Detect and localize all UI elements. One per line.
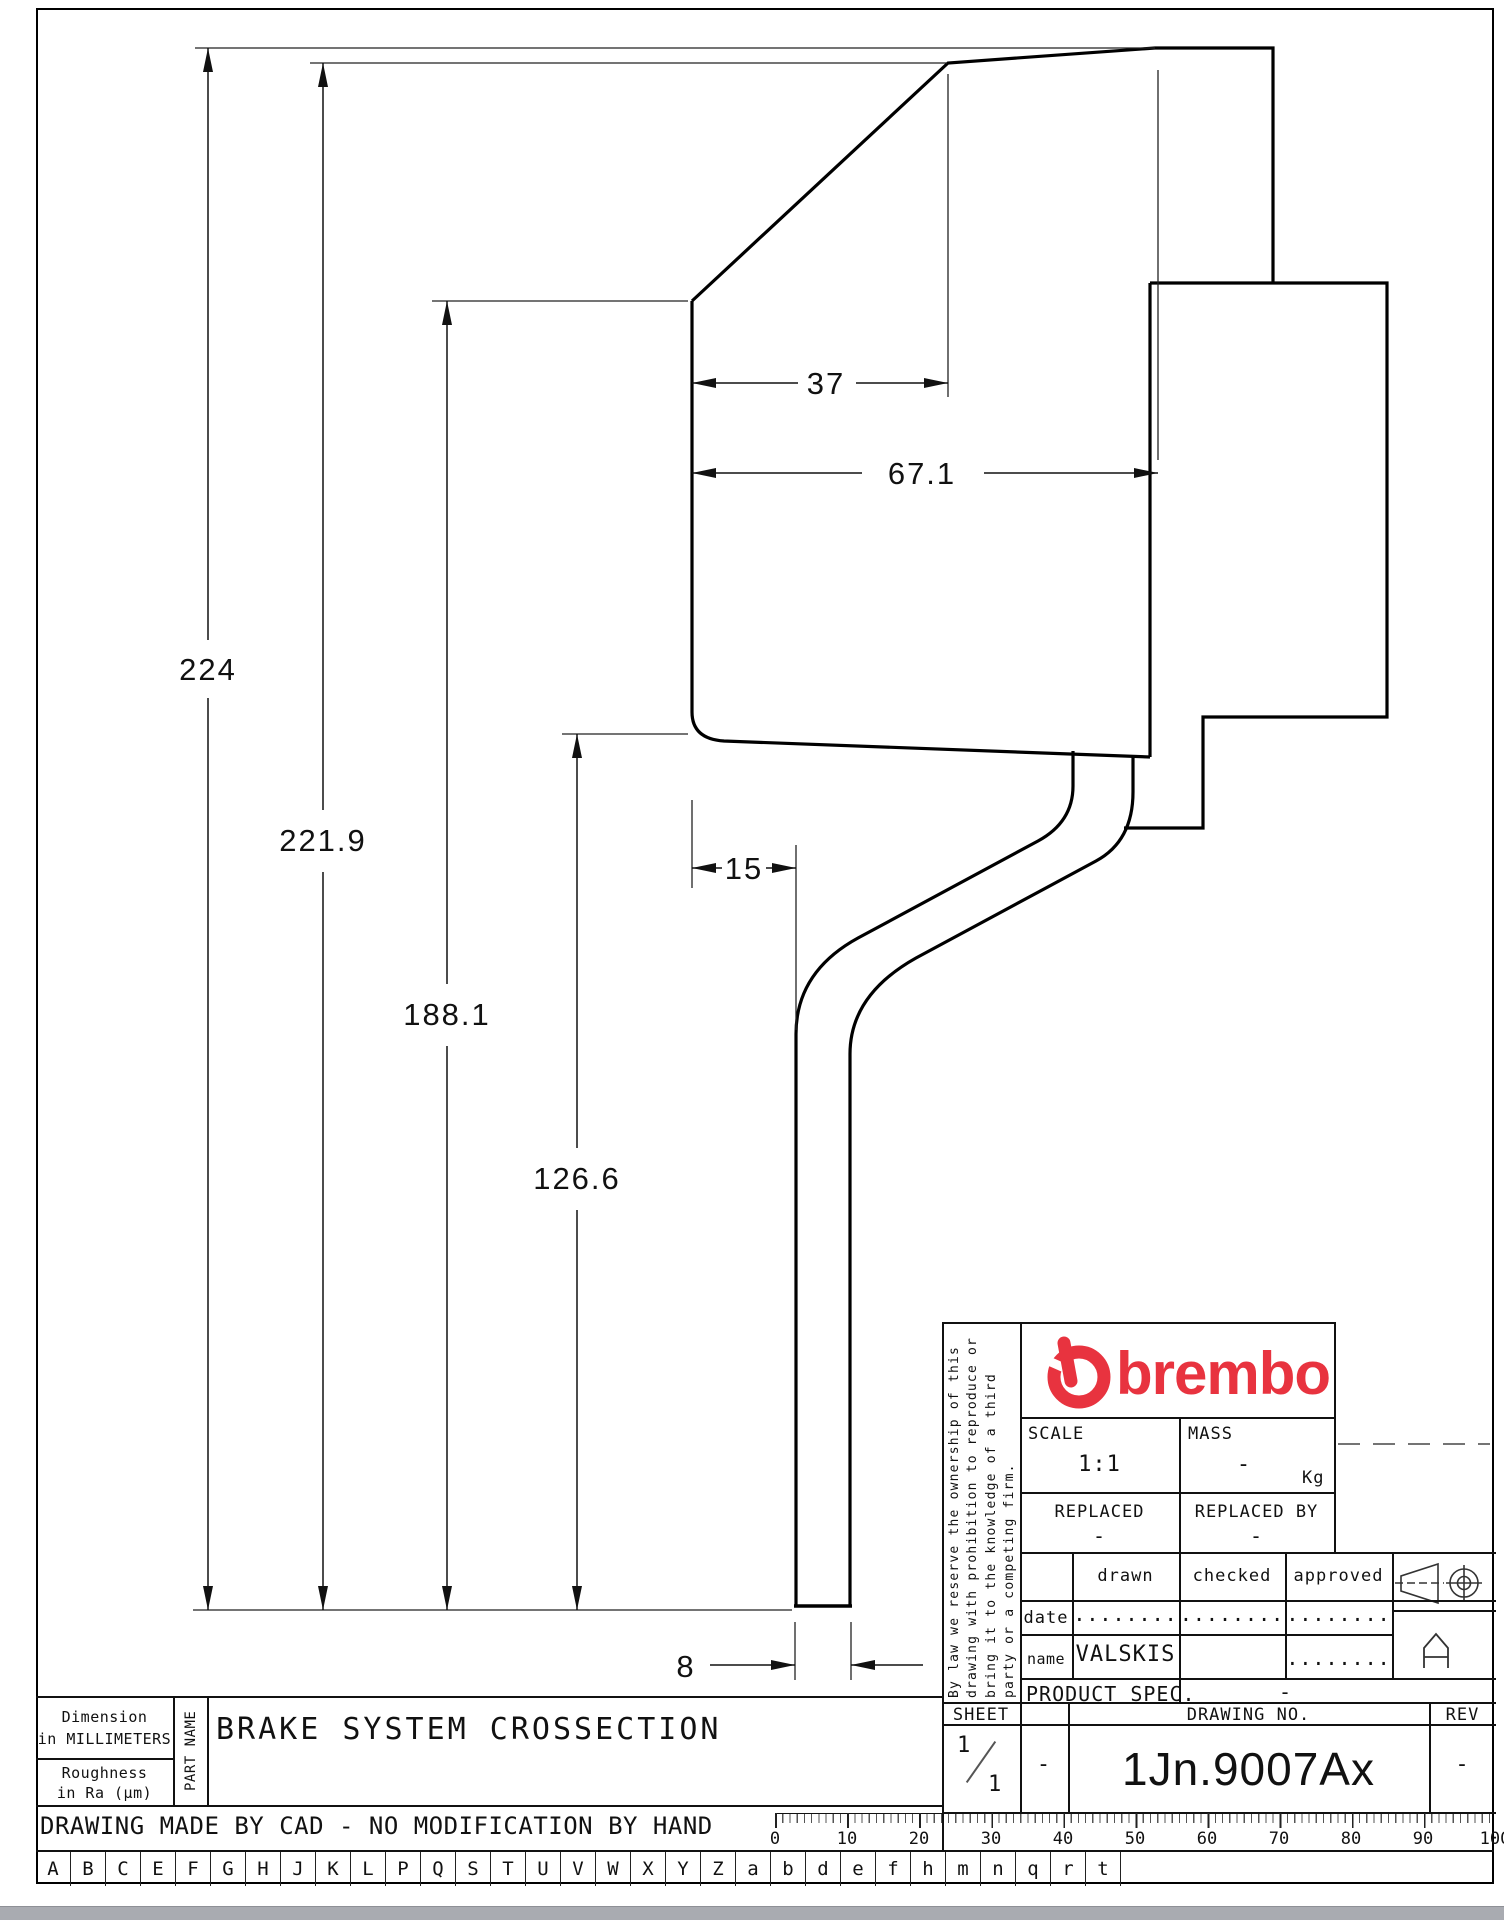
dim-37: 37 (807, 366, 845, 401)
revision-letter-cell: W (596, 1852, 631, 1886)
revision-letter-cell: t (1086, 1852, 1121, 1886)
dim-126-6: 126.6 (533, 1161, 621, 1196)
dim-188-1: 188.1 (403, 997, 491, 1032)
dim-224: 224 (179, 652, 237, 687)
revision-letter-cell: r (1051, 1852, 1086, 1886)
legal-line: drawing with prohibition to reproduce or (964, 1328, 981, 1698)
approved-header: approved (1285, 1566, 1392, 1586)
ruler-number: 10 (811, 1829, 883, 1849)
revision-letter-cell: S (456, 1852, 491, 1886)
revision-letter-cell: G (211, 1852, 246, 1886)
first-angle-projection-icon (1395, 1564, 1482, 1603)
partname-col-right (207, 1696, 209, 1805)
revision-letter-cell: C (106, 1852, 141, 1886)
body-top-profile (692, 48, 1273, 301)
mass-label: MASS (1188, 1424, 1233, 1444)
date-row-bottom (1020, 1634, 1392, 1636)
replaced-row-bottom (1020, 1552, 1496, 1554)
dim-8: 8 (676, 1649, 695, 1684)
footer-top-border (36, 1696, 942, 1698)
revision-letter-cell: e (841, 1852, 876, 1886)
revision-letter-cell: a (736, 1852, 771, 1886)
right-block-outline (1124, 283, 1387, 828)
scale-label: SCALE (1028, 1424, 1084, 1444)
roughness-note-line1: Roughness (36, 1764, 173, 1782)
legal-line: By law we reserve the ownership of this (946, 1328, 963, 1698)
date-approved: ........ (1285, 1602, 1392, 1626)
name-drawn: VALSKIS (1072, 1642, 1179, 1667)
revision-letter-cell: U (526, 1852, 561, 1886)
drawing-no-value: 1Jn.9007Ax (1068, 1742, 1429, 1796)
revision-letter-cell: V (561, 1852, 596, 1886)
footer-bottom-border (36, 1805, 942, 1807)
name-approved: ........ (1285, 1646, 1392, 1670)
product-spec-label: PRODUCT SPEC. (1026, 1682, 1196, 1706)
part-name-label: PART NAME (175, 1698, 207, 1803)
cad-note: DRAWING MADE BY CAD - NO MODIFICATION BY… (40, 1812, 713, 1840)
revision-letter-cell: Q (421, 1852, 456, 1886)
brembo-logo: brembo (1040, 1334, 1330, 1412)
dim-67-1: 67.1 (888, 456, 956, 491)
revision-letter-cell: h (911, 1852, 946, 1886)
replaced-value: - (1020, 1524, 1179, 1548)
revision-letter-cell: T (491, 1852, 526, 1886)
revision-letter-cell: E (141, 1852, 176, 1886)
legal-line: party or a competing firm. (1001, 1328, 1018, 1698)
extension-lines (193, 48, 1490, 1680)
ruler-number: 50 (1099, 1829, 1171, 1849)
revision-letter-cell: J (281, 1852, 316, 1886)
scale-row-bottom (1020, 1492, 1334, 1494)
ruler-number: 20 (883, 1829, 955, 1849)
drawing-no-label: DRAWING NO. (1068, 1705, 1429, 1725)
dimension-note-line2: in MILLIMETERS (36, 1730, 173, 1748)
pipe-left-edge (796, 751, 1073, 1606)
ruler-scale: 0102030405060708090100 (739, 1829, 1504, 1849)
replaced-label: REPLACED (1020, 1502, 1179, 1522)
date-checked: ........ (1179, 1602, 1285, 1626)
ruler-number: 60 (1171, 1829, 1243, 1849)
approved-col-divider (1392, 1552, 1394, 1678)
ruler-number: 30 (955, 1829, 1027, 1849)
revision-letter-cell: K (316, 1852, 351, 1886)
revision-letter-cell: L (351, 1852, 386, 1886)
product-spec-value: - (1179, 1680, 1392, 1704)
sheet-col2-value: - (1020, 1752, 1068, 1777)
revision-letter-cell: m (946, 1852, 981, 1886)
checked-header: checked (1179, 1566, 1285, 1586)
revision-letter-cell: X (631, 1852, 666, 1886)
window-bottom-bar (0, 1906, 1504, 1920)
revision-letter-cell: B (71, 1852, 106, 1886)
revision-letter-cell: Z (701, 1852, 736, 1886)
legal-notice: By law we reserve the ownership of this … (946, 1328, 1018, 1698)
legal-col-right (1020, 1322, 1022, 1812)
sheet-denominator: 1 (988, 1772, 1002, 1797)
scale-value: 1:1 (1020, 1452, 1179, 1477)
ruler-major-ticks (775, 1813, 1496, 1828)
rev-label: REV (1429, 1705, 1496, 1725)
body-left-bottom (692, 301, 1150, 757)
revision-letter-cell: b (771, 1852, 806, 1886)
revision-letter-cell: A (36, 1852, 71, 1886)
revision-letter-cell: H (246, 1852, 281, 1886)
ruler-number: 40 (1027, 1829, 1099, 1849)
roughness-note-line2: in Ra (µm) (36, 1784, 173, 1802)
cad-drawing: 224 221.9 188.1 126.6 37 67.1 15 8 (0, 0, 1504, 1920)
part-title: BRAKE SYSTEM CROSSECTION (216, 1712, 721, 1747)
revision-letter-cell: d (806, 1852, 841, 1886)
brembo-logo-icon (1040, 1335, 1116, 1411)
revision-letter-cell: Y (666, 1852, 701, 1886)
legal-line: bring it to the knowledge of a third (983, 1328, 1000, 1698)
ruler-number: 70 (1243, 1829, 1315, 1849)
ruler-number: 80 (1315, 1829, 1387, 1849)
symbol-box-divider (1392, 1610, 1496, 1612)
drawing-sheet: 224 221.9 188.1 126.6 37 67.1 15 8 (0, 0, 1504, 1920)
brembo-wordmark: brembo (1116, 1339, 1330, 1408)
date-drawn: ........ (1072, 1602, 1179, 1626)
dimension-labels: 224 221.9 188.1 126.6 37 67.1 15 8 (179, 366, 956, 1684)
revision-letter-cell: n (981, 1852, 1016, 1886)
mass-unit: Kg (1302, 1468, 1324, 1488)
drawn-header: drawn (1072, 1566, 1179, 1586)
format-a-icon (1424, 1634, 1448, 1668)
sheet-numerator: 1 (957, 1733, 971, 1758)
upper-box-right (1334, 1322, 1336, 1552)
revision-letter-cell: f (876, 1852, 911, 1886)
ruler-number: 100 (1459, 1829, 1504, 1849)
titleblock-left-border (942, 1322, 944, 1850)
titleblock-top-border (942, 1322, 1334, 1324)
revision-letters-row: ABCEFGHJKLPQSTUVWXYZabdefhmnqrt (36, 1850, 1494, 1886)
replaced-by-value: - (1179, 1524, 1334, 1548)
ruler-number: 0 (739, 1829, 811, 1849)
dimension-note-line1: Dimension (36, 1708, 173, 1726)
dim-221-9: 221.9 (279, 823, 367, 858)
name-label: name (1020, 1650, 1072, 1668)
replaced-by-label: REPLACED BY (1179, 1502, 1334, 1522)
logo-box-bottom (1020, 1417, 1334, 1419)
mass-value: - (1179, 1452, 1309, 1477)
rev-value: - (1429, 1752, 1496, 1777)
revision-letter-cell: q (1016, 1852, 1051, 1886)
notes-divider (36, 1758, 173, 1760)
ruler-number: 90 (1387, 1829, 1459, 1849)
sheet-label: SHEET (942, 1705, 1020, 1725)
revision-letter-cell: F (176, 1852, 211, 1886)
date-label: date (1020, 1608, 1072, 1628)
revision-letter-cell: P (386, 1852, 421, 1886)
dim-15: 15 (725, 851, 763, 886)
